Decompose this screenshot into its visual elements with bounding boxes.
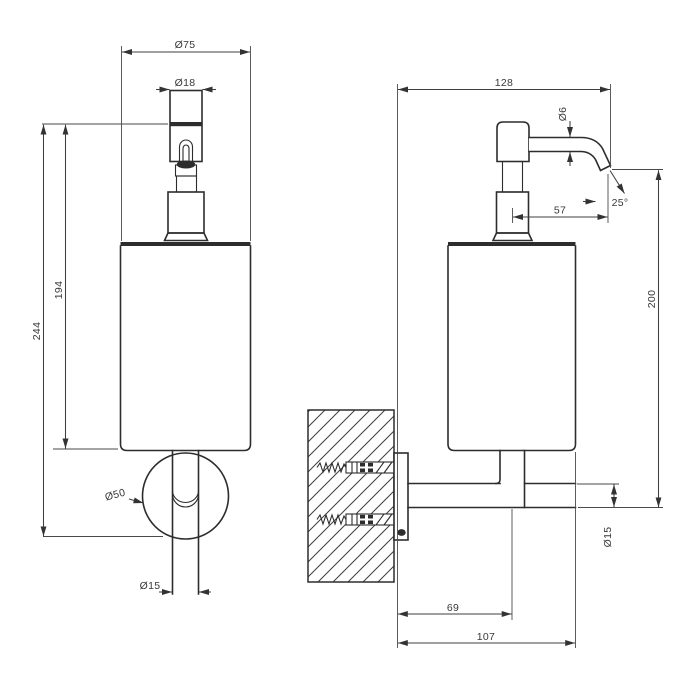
dim-label: Ø50 bbox=[104, 487, 127, 504]
dim-side-diameter-arm: Ø15 bbox=[577, 484, 619, 547]
dim-front-diameter-pump: Ø18 bbox=[156, 77, 216, 90]
support-arm-side bbox=[408, 451, 576, 508]
dim-side-spout-reach: 57 bbox=[513, 174, 609, 223]
technical-drawing-page: Ø75 Ø18 194 244 Ø50 Ø15 bbox=[0, 0, 700, 700]
dim-front-diameter-flange: Ø50 bbox=[104, 487, 144, 504]
dim-side-height: 200 bbox=[578, 170, 663, 508]
dim-side-diameter-spout: Ø6 bbox=[557, 107, 570, 166]
dim-label: 25° bbox=[612, 197, 629, 209]
pump-head-side bbox=[493, 122, 611, 241]
dim-label: 128 bbox=[495, 77, 513, 89]
dim-label: 57 bbox=[554, 205, 566, 217]
dim-label: 200 bbox=[646, 290, 658, 308]
dim-side-spout-angle: 25° bbox=[583, 171, 628, 210]
wall-flange-front bbox=[143, 451, 229, 595]
pump-head-front bbox=[165, 91, 208, 241]
dim-label: Ø75 bbox=[175, 39, 196, 51]
front-view: Ø75 Ø18 194 244 Ø50 Ø15 bbox=[31, 39, 251, 594]
dim-side-depth: 128 bbox=[398, 77, 611, 648]
dim-side-body-edge: 107 bbox=[398, 452, 576, 648]
dim-front-diameter-arm: Ø15 bbox=[140, 580, 211, 592]
side-view: 128 Ø6 25° 57 200 bbox=[308, 77, 663, 648]
bottle-front bbox=[121, 242, 251, 451]
soap-dispenser-technical-drawing: Ø75 Ø18 194 244 Ø50 Ø15 bbox=[0, 0, 700, 700]
dim-label: Ø15 bbox=[140, 580, 161, 592]
plate-screw-hole bbox=[397, 529, 405, 536]
dim-label-244: 244 bbox=[31, 322, 43, 340]
wall-section bbox=[308, 410, 394, 582]
bottle-side bbox=[448, 242, 576, 451]
dim-label-194: 194 bbox=[53, 281, 65, 299]
dim-label: 107 bbox=[477, 631, 495, 643]
dim-side-arm-center: 69 bbox=[398, 509, 512, 620]
dim-label: Ø18 bbox=[175, 77, 196, 89]
dim-label: Ø6 bbox=[557, 107, 569, 122]
dim-label: Ø15 bbox=[602, 527, 614, 548]
dim-label: 69 bbox=[447, 602, 459, 614]
